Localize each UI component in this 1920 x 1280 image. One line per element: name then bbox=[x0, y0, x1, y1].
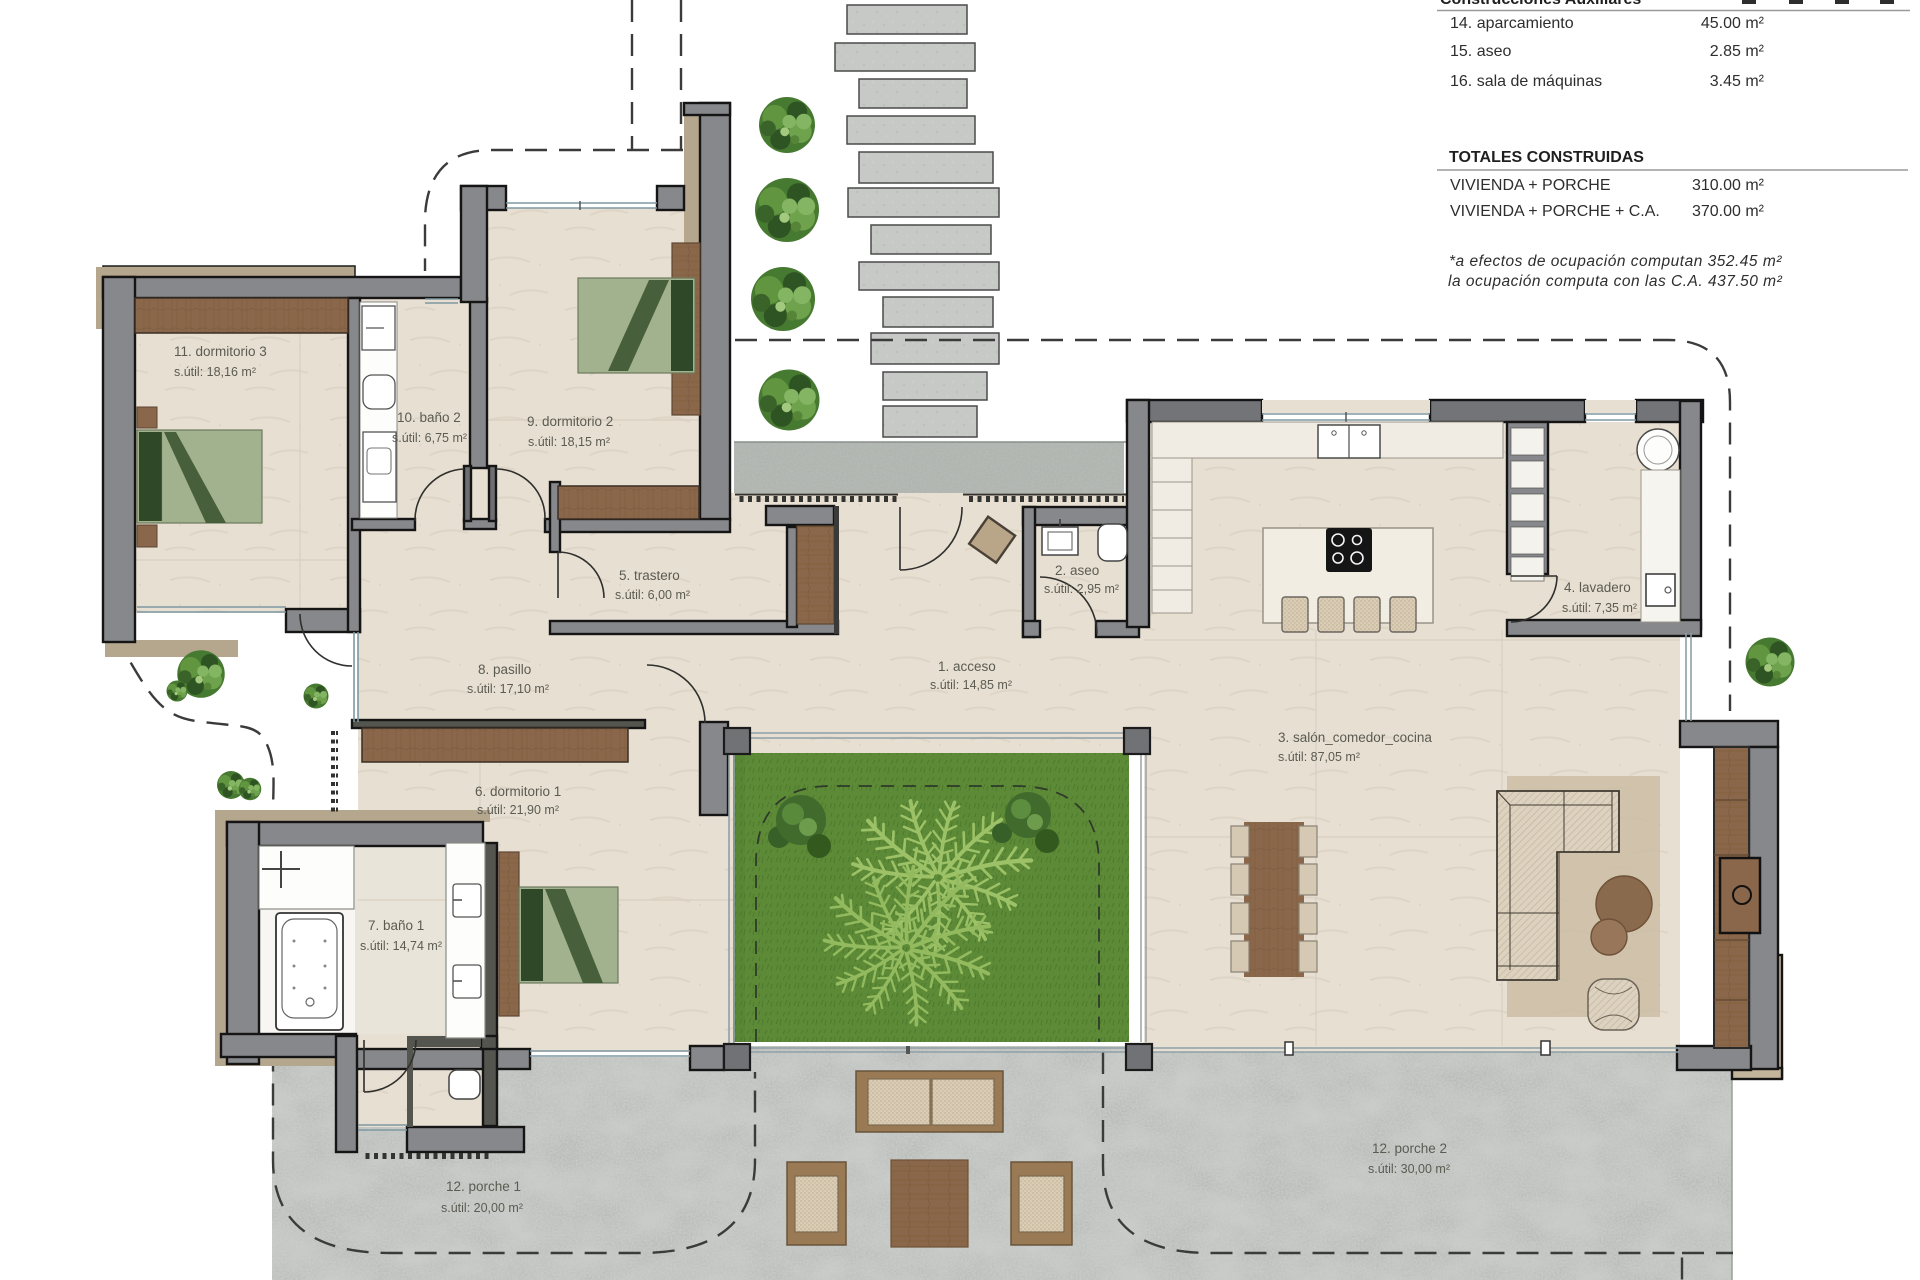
svg-text:s.útil: 21,90 m²: s.útil: 21,90 m² bbox=[477, 803, 559, 817]
svg-text:s.útil: 6,00 m²: s.útil: 6,00 m² bbox=[615, 588, 690, 602]
svg-text:s.útil: 6,75 m²: s.útil: 6,75 m² bbox=[392, 431, 467, 445]
svg-text:6. dormitorio 1: 6. dormitorio 1 bbox=[475, 784, 561, 799]
svg-text:7. baño 1: 7. baño 1 bbox=[368, 918, 424, 933]
svg-text:5. trastero: 5. trastero bbox=[619, 568, 680, 583]
svg-text:VIVIENDA + PORCHE: VIVIENDA + PORCHE bbox=[1450, 177, 1611, 194]
svg-text:TOTALES CONSTRUIDAS: TOTALES CONSTRUIDAS bbox=[1449, 149, 1644, 166]
svg-text:s.útil: 7,35 m²: s.útil: 7,35 m² bbox=[1562, 601, 1637, 615]
svg-text:3. salón_comedor_cocina: 3. salón_comedor_cocina bbox=[1278, 730, 1432, 745]
svg-text:s.útil: 87,05 m²: s.útil: 87,05 m² bbox=[1278, 750, 1360, 764]
svg-text:4. lavadero: 4. lavadero bbox=[1564, 580, 1631, 595]
svg-text:11. dormitorio 3: 11. dormitorio 3 bbox=[174, 344, 267, 359]
svg-text:la ocupación computa con las C: la ocupación computa con las C.A. 437.50… bbox=[1448, 273, 1783, 290]
svg-text:12. porche 2: 12. porche 2 bbox=[1372, 1141, 1447, 1156]
svg-text:Construcciones Auxiliares: Construcciones Auxiliares bbox=[1440, 0, 1641, 8]
svg-text:2. aseo: 2. aseo bbox=[1055, 563, 1099, 578]
svg-text:370.00 m²: 370.00 m² bbox=[1692, 203, 1765, 220]
svg-text:s.útil: 14,74 m²: s.útil: 14,74 m² bbox=[360, 939, 442, 953]
svg-text:s.útil: 14,85 m²: s.útil: 14,85 m² bbox=[930, 678, 1012, 692]
svg-text:1. acceso: 1. acceso bbox=[938, 659, 996, 674]
svg-text:2.85 m²: 2.85 m² bbox=[1710, 43, 1765, 60]
svg-text:15. aseo: 15. aseo bbox=[1450, 43, 1511, 60]
svg-text:3.45 m²: 3.45 m² bbox=[1710, 73, 1765, 90]
svg-text:s.útil: 17,10 m²: s.útil: 17,10 m² bbox=[467, 682, 549, 696]
svg-text:10. baño 2: 10. baño 2 bbox=[397, 410, 461, 425]
svg-text:s.útil: 18,15 m²: s.útil: 18,15 m² bbox=[528, 435, 610, 449]
svg-text:16. sala de máquinas: 16. sala de máquinas bbox=[1450, 73, 1602, 90]
svg-text:14. aparcamiento: 14. aparcamiento bbox=[1450, 15, 1574, 32]
svg-text:12. porche 1: 12. porche 1 bbox=[446, 1179, 521, 1194]
svg-text:45.00 m²: 45.00 m² bbox=[1701, 15, 1765, 32]
svg-text:VIVIENDA + PORCHE + C.A.: VIVIENDA + PORCHE + C.A. bbox=[1450, 203, 1660, 220]
svg-text:8. pasillo: 8. pasillo bbox=[478, 662, 531, 677]
svg-text:s.útil: 30,00 m²: s.útil: 30,00 m² bbox=[1368, 1162, 1450, 1176]
svg-text:9. dormitorio 2: 9. dormitorio 2 bbox=[527, 414, 613, 429]
svg-text:s.útil: 18,16 m²: s.útil: 18,16 m² bbox=[174, 365, 256, 379]
svg-text:s.útil: 20,00 m²: s.útil: 20,00 m² bbox=[441, 1201, 523, 1215]
svg-text:310.00 m²: 310.00 m² bbox=[1692, 177, 1765, 194]
svg-text:s.útil: 2,95 m²: s.útil: 2,95 m² bbox=[1044, 582, 1119, 596]
svg-text:*a efectos de ocupación comput: *a efectos de ocupación computan 352.45 … bbox=[1449, 253, 1782, 270]
